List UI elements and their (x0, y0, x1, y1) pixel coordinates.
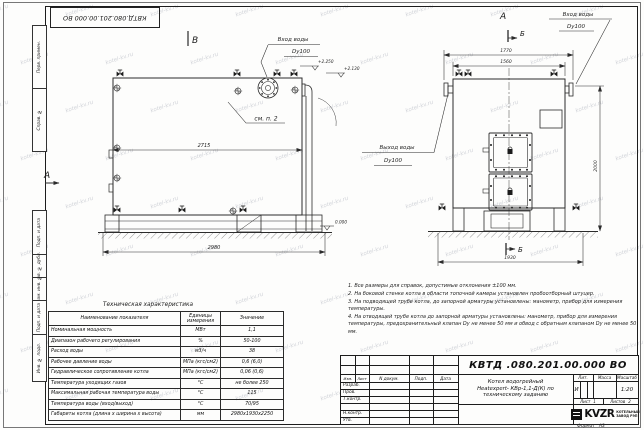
center-mark-icons (113, 84, 299, 215)
title-block-doc-number: КВТД .080.201.00.000 ВО (458, 356, 638, 374)
dim-total-text: 2980 (208, 245, 221, 251)
sheets-label: Листов (610, 399, 625, 404)
notes-block: 1. Все размеры для справок, допустимые о… (348, 283, 637, 337)
inlet-flange-front (565, 83, 573, 96)
format-value: А3 (599, 424, 605, 429)
table-cell: 1,1 (221, 326, 284, 337)
view-b-letter: В (192, 36, 198, 46)
table-cell: °С (181, 399, 221, 410)
side-base (105, 215, 322, 232)
scale-label: Масштаб (616, 374, 638, 381)
hdr-podp: Подп. (409, 374, 433, 382)
hdr-izm: Изм. (341, 374, 355, 382)
note-line: 2. На боковой стенке котла в области топ… (348, 291, 637, 298)
view-a-letter: А (499, 12, 506, 22)
table-cell: 0,6 (6,0) (221, 357, 284, 368)
front-inlet-dn: Dy100 (567, 24, 585, 30)
table-cell: 2980х1930х2250 (221, 410, 284, 421)
side-tab (109, 150, 113, 158)
sheet-value: 1 (593, 399, 596, 404)
table-row: Габариты котла (длина х ширина х высота)… (49, 410, 284, 421)
table-row: Гидравлическое сопротивление котлаМПа (к… (49, 368, 284, 379)
dim-outer-text: 1770 (500, 48, 512, 54)
note-line: 4. На отводящей трубе котла до запорной … (348, 314, 637, 335)
door-hinge (483, 148, 489, 152)
lower-door (483, 174, 532, 210)
side-tab (109, 184, 113, 192)
section-b-letter-bottom: Б (518, 246, 523, 254)
table-cell: Температура воды (вход/выход) (49, 399, 181, 410)
outlet-dn: Dy100 (384, 158, 402, 164)
kvzr-logo-icon (571, 409, 582, 420)
table-cell: Габариты котла (длина х ширина х высота) (49, 410, 181, 421)
signature-row-label: Т.контр. (342, 397, 370, 404)
table-cell: Рабочее давление воды (49, 357, 181, 368)
front-inlet-label: Вход воды (563, 12, 594, 18)
product-line: техническому заданию (483, 392, 548, 399)
dim-1770 (444, 50, 573, 80)
table-cell: МВт (181, 326, 221, 337)
table-cell: Диапазон рабочего регулирования (49, 336, 181, 347)
side-inlet-dn: Dy100 (292, 49, 310, 55)
outlet-leader (434, 94, 448, 153)
table-row: Температура воды (вход/выход)°С70/95 (49, 399, 284, 410)
ground-hatch-side (98, 233, 332, 239)
dim-1930 (438, 233, 583, 266)
scale-value: 1:20 (616, 381, 638, 398)
hdr-data: Дата (433, 374, 458, 382)
tech-col-units: Единицы измерения (181, 312, 221, 326)
drawing-sheet: kotel-kv.rukotel-kv.rukotel-kv.rukotel-k… (0, 0, 644, 430)
outlet-label: Выход воды (379, 145, 415, 151)
table-cell: МПа (кгс/см2) (181, 357, 221, 368)
company-logo-cell: KVZR КОТЕЛЬНЫЙ ЗАВОД РЭП (573, 404, 638, 424)
table-cell: 38 (221, 347, 284, 358)
note-line: 1. Все размеры для справок, допустимые о… (348, 283, 637, 290)
table-row: Диапазон рабочего регулирования%50-100 (49, 336, 284, 347)
lit-value: И (573, 381, 580, 398)
dim-inner-text: 2715 (198, 143, 211, 149)
table-cell: °С (181, 389, 221, 400)
inlet-flange-icon (258, 78, 278, 98)
elev-top-text: +2.250 (318, 59, 334, 64)
door-hinge (483, 189, 489, 193)
tech-table: Наименование показателя Единицы измерени… (48, 311, 284, 421)
table-cell: 70/95 (221, 399, 284, 410)
table-cell: Расход воды (49, 347, 181, 358)
side-view: 2715 2980 В Вход воды Dy100 Выход воды D… (43, 31, 448, 256)
section-b-letter-top: Б (520, 30, 525, 38)
table-cell: 115 (221, 389, 284, 400)
tech-table-header-row: Наименование показателя Единицы измерени… (49, 312, 284, 326)
front-view: 1770 1560 2000 1930 (428, 12, 612, 266)
table-row: Максимальная рабочая температура воды°С1… (49, 389, 284, 400)
table-cell: % (181, 336, 221, 347)
product-name: Котел водогрейный Heatexpert- КВр-1,1-Д(… (458, 374, 573, 404)
tech-col-value: Значение (221, 312, 284, 326)
table-row: Рабочее давление водыМПа (кгс/см2)0,6 (6… (49, 357, 284, 368)
side-inlet-label: Вход воды (278, 37, 309, 43)
format-note: Формат А3 (548, 424, 634, 429)
lit-label: Лит. (573, 374, 593, 381)
signature-row-label: Утв. (342, 418, 370, 425)
title-block: КВТД .080.201.00.000 ВО Изм. Лист N доку… (340, 355, 639, 425)
signature-row-label: Н.контр. (342, 411, 370, 418)
tech-col-name: Наименование показателя (49, 312, 181, 326)
hdr-list: Лист (355, 374, 369, 382)
elev-zero-text: 0.000 (335, 220, 347, 225)
upper-door (483, 133, 532, 172)
table-cell: мм (181, 410, 221, 421)
tech-table-title: Техническая характеристика (48, 302, 248, 308)
elev-outlet-text: +2.130 (344, 66, 360, 71)
table-cell: 0,06 (0,6) (221, 368, 284, 379)
table-cell: Температура уходящих газов (49, 378, 181, 389)
outlet-pipe (302, 84, 336, 231)
dim-base-text: 1930 (504, 255, 516, 261)
table-row: Расход водым3/ч38 (49, 347, 284, 358)
table-cell: Номинальная мощность (49, 326, 181, 337)
sheets-value: 2 (628, 399, 631, 404)
outlet-flange-front (444, 83, 453, 96)
table-row: Температура уходящих газов°Сне более 250 (49, 378, 284, 389)
control-panel (540, 110, 562, 128)
ground-hatch-front (428, 232, 598, 238)
side-inlet-leader (261, 45, 268, 77)
table-cell: °С (181, 378, 221, 389)
section-b-top (508, 30, 517, 42)
dim-height-text: 2000 (593, 160, 599, 172)
note-line: 3. На подводящей трубе котла, до запорно… (348, 299, 637, 313)
elevation-marks (300, 66, 345, 230)
tech-table-body: Номинальная мощностьМВт1,1Диапазон рабоч… (49, 326, 284, 421)
view-a-marker-letter: А (43, 171, 50, 181)
hdr-ndoc: N докум. (369, 374, 409, 382)
kvzr-logo-text: KVZR (584, 408, 614, 420)
see-note-text: см. п. 2 (254, 116, 277, 123)
signature-row-label: Пров. (342, 390, 370, 397)
table-cell: Максимальная рабочая температура воды (49, 389, 181, 400)
signature-row-label: Разраб. (342, 383, 370, 390)
format-label: Формат (577, 424, 595, 429)
company-line: ЗАВОД РЭП (616, 414, 639, 418)
table-cell: Гидравлическое сопротивление котла (49, 368, 181, 379)
table-cell: МПа (кгс/см2) (181, 368, 221, 379)
company-name: КОТЕЛЬНЫЙ ЗАВОД РЭП (616, 410, 639, 418)
section-b-bottom (506, 243, 515, 255)
table-row: Номинальная мощностьМВт1,1 (49, 326, 284, 337)
mass-label: Масса (593, 374, 616, 381)
table-cell: 50-100 (221, 336, 284, 347)
valve-icons-top (117, 70, 298, 77)
table-cell: м3/ч (181, 347, 221, 358)
product-line: Котел водогрейный (488, 379, 544, 386)
signature-row-label (342, 404, 370, 411)
product-line: Heatexpert- КВр-1,1-Д(К) по (477, 386, 554, 393)
sheet-label: Лист (580, 399, 590, 404)
valve-icons-bottom (114, 206, 247, 213)
dim-inner-front-text: 1560 (500, 59, 512, 65)
table-cell: не более 250 (221, 378, 284, 389)
